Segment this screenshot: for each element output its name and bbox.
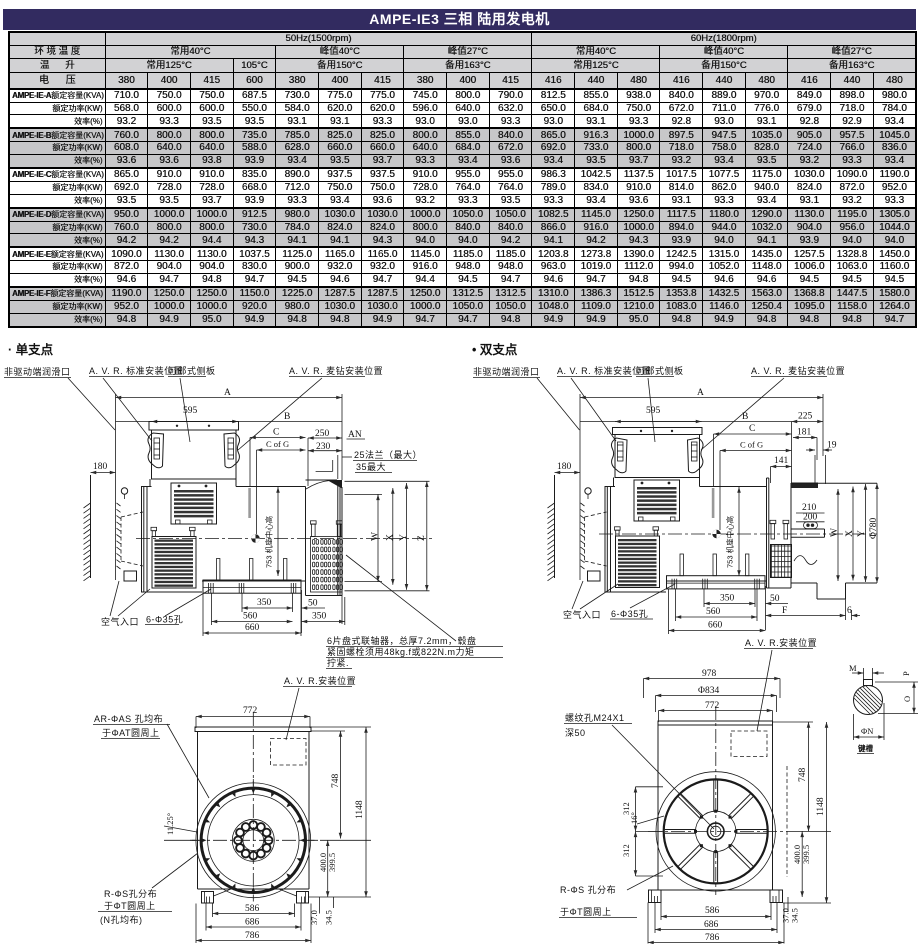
svg-text:非驱动端润滑口: 非驱动端润滑口	[473, 366, 540, 377]
svg-text:660: 660	[245, 623, 260, 633]
svg-text:C: C	[749, 424, 755, 434]
svg-text:350: 350	[720, 594, 735, 604]
svg-text:· 单支点: · 单支点	[8, 342, 54, 357]
svg-text:350: 350	[257, 598, 272, 608]
svg-text:34.5: 34.5	[790, 908, 800, 923]
svg-text:A: A	[224, 388, 231, 398]
svg-text:C of G: C of G	[266, 439, 289, 449]
svg-text:W: W	[830, 528, 840, 537]
svg-text:• 双支点: • 双支点	[472, 342, 518, 357]
svg-text:6: 6	[847, 606, 852, 616]
svg-text:6片盘式联轴器，总厚7.2mm，毂盘: 6片盘式联轴器，总厚7.2mm，毂盘	[327, 635, 477, 646]
svg-text:A. V. R. 麦钻安装位置: A. V. R. 麦钻安装位置	[751, 365, 845, 376]
svg-text:748: 748	[798, 768, 808, 783]
svg-text:312: 312	[621, 844, 631, 857]
svg-text:紧固螺栓须用48kg.f或822N.m力矩: 紧固螺栓须用48kg.f或822N.m力矩	[327, 646, 475, 657]
svg-text:空气入口: 空气入口	[563, 609, 601, 620]
svg-text:560: 560	[243, 612, 258, 622]
svg-text:50: 50	[308, 599, 318, 609]
svg-text:AN: AN	[348, 430, 362, 440]
svg-text:拧紧.: 拧紧.	[327, 657, 349, 668]
svg-text:16°: 16°	[629, 812, 639, 824]
svg-text:O: O	[902, 696, 912, 702]
svg-text:50: 50	[770, 594, 780, 604]
svg-text:595: 595	[646, 406, 661, 416]
svg-text:230: 230	[316, 442, 331, 452]
svg-text:595: 595	[183, 406, 198, 416]
svg-text:Φ834: Φ834	[698, 686, 719, 696]
svg-text:772: 772	[243, 706, 258, 716]
svg-text:560: 560	[706, 607, 721, 617]
svg-text:非驱动端润滑口: 非驱动端润滑口	[4, 366, 71, 377]
svg-text:586: 586	[245, 904, 260, 914]
svg-text:B: B	[284, 412, 290, 422]
svg-text:键槽: 键槽	[857, 743, 873, 753]
svg-text:225: 225	[798, 412, 813, 422]
svg-text:35最大: 35最大	[356, 461, 386, 472]
svg-text:210: 210	[802, 503, 817, 513]
svg-text:686: 686	[704, 920, 719, 930]
svg-text:1148: 1148	[816, 797, 826, 816]
svg-text:W: W	[371, 532, 381, 541]
svg-text:(N孔均布): (N孔均布)	[100, 914, 143, 925]
svg-text:Φ780: Φ780	[869, 518, 879, 539]
svg-text:C: C	[273, 428, 279, 438]
svg-text:A: A	[697, 388, 704, 398]
svg-text:978: 978	[702, 669, 717, 679]
svg-text:1148: 1148	[355, 800, 365, 819]
svg-text:660: 660	[708, 621, 723, 631]
svg-text:于ΦAT圆周上: 于ΦAT圆周上	[102, 728, 160, 738]
svg-text:B: B	[742, 412, 748, 422]
svg-text:200: 200	[803, 513, 818, 523]
svg-text:ΦN: ΦN	[861, 726, 873, 736]
svg-text:R-ΦS孔分布: R-ΦS孔分布	[104, 888, 157, 899]
svg-text:C of G: C of G	[740, 440, 763, 450]
svg-text:399.5: 399.5	[327, 853, 337, 872]
svg-text:于ΦT圆周上: 于ΦT圆周上	[560, 907, 612, 917]
svg-text:180: 180	[557, 462, 572, 472]
svg-text:A. V. R.安装位置: A. V. R.安装位置	[745, 637, 817, 648]
svg-text:786: 786	[245, 931, 260, 941]
svg-text:586: 586	[705, 906, 720, 916]
svg-text:350: 350	[312, 612, 327, 622]
svg-text:37.0: 37.0	[309, 910, 319, 925]
svg-text:180: 180	[93, 462, 108, 472]
svg-text:772: 772	[705, 701, 720, 711]
svg-text:M: M	[849, 663, 857, 673]
svg-text:R-ΦS 孔分布: R-ΦS 孔分布	[560, 884, 616, 895]
svg-text:Y: Y	[857, 530, 867, 537]
svg-text:A. V. R. 麦钻安装位置: A. V. R. 麦钻安装位置	[289, 365, 383, 376]
svg-text:141: 141	[774, 456, 789, 466]
svg-text:6-Φ35孔: 6-Φ35孔	[146, 615, 183, 625]
svg-text:Y: Y	[399, 534, 409, 541]
svg-text:F: F	[782, 606, 787, 616]
svg-text:686: 686	[245, 918, 260, 928]
svg-text:X: X	[385, 534, 395, 541]
svg-text:可邮式侧板: 可邮式侧板	[168, 365, 216, 376]
svg-text:181: 181	[797, 428, 812, 438]
svg-text:399.5: 399.5	[801, 845, 811, 864]
svg-text:786: 786	[705, 933, 720, 943]
svg-text:19: 19	[827, 441, 837, 451]
svg-text:34.5: 34.5	[324, 910, 334, 925]
svg-text:A. V. R.安装位置: A. V. R.安装位置	[284, 675, 356, 686]
svg-text:P: P	[901, 671, 911, 676]
svg-text:螺纹孔M24X1: 螺纹孔M24X1	[565, 712, 625, 723]
svg-text:748: 748	[331, 774, 341, 789]
svg-text:25法兰（最大）: 25法兰（最大）	[354, 449, 422, 460]
svg-text:753 机座中心高: 753 机座中心高	[264, 515, 274, 568]
svg-text:250: 250	[315, 429, 330, 439]
svg-text:753 机座中心高: 753 机座中心高	[725, 515, 735, 568]
svg-text:空气入口: 空气入口	[101, 616, 139, 627]
svg-text:X: X	[845, 530, 855, 537]
svg-text:11.25°: 11.25°	[165, 813, 175, 835]
svg-text:深50: 深50	[565, 728, 586, 738]
svg-text:Z: Z	[417, 535, 427, 541]
svg-text:可邮式侧板: 可邮式侧板	[636, 365, 684, 376]
svg-text:AR-ΦAS 孔均布: AR-ΦAS 孔均布	[94, 713, 163, 724]
svg-text:6-Φ35孔: 6-Φ35孔	[611, 609, 648, 619]
svg-text:于ΦT圆周上: 于ΦT圆周上	[104, 901, 156, 911]
